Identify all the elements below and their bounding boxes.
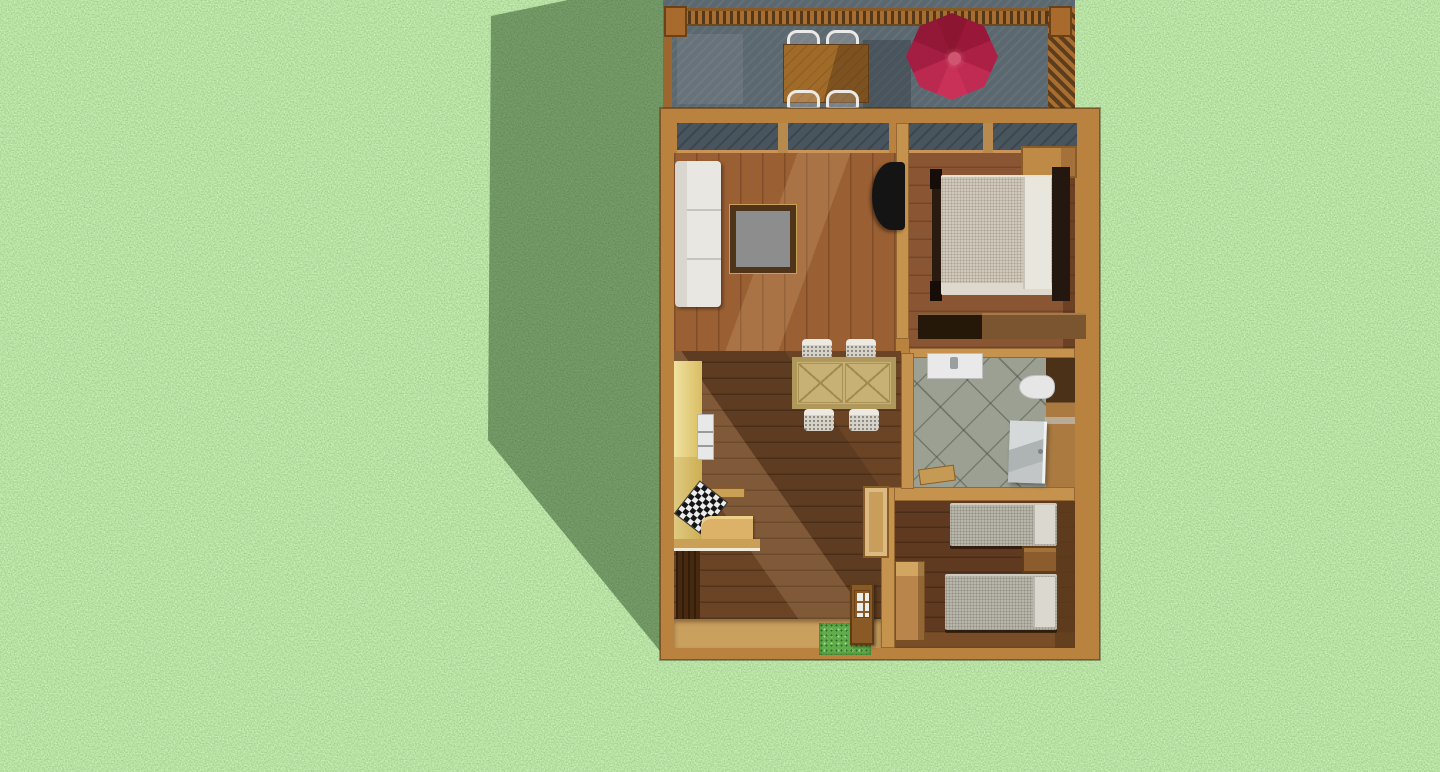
tall-dresser — [895, 561, 925, 641]
deck-post-left — [664, 6, 687, 37]
scene-3d-floor-plan — [0, 0, 1440, 772]
bathroom-door-knob — [1038, 449, 1043, 454]
bed-headboard — [1052, 167, 1070, 301]
closet-shelf — [674, 539, 760, 551]
wall-bathroom-kidsroom — [881, 487, 1075, 501]
hutch-cabinet — [863, 486, 889, 558]
bed-pillow — [1023, 177, 1051, 289]
nightstand — [1022, 546, 1058, 573]
house — [660, 108, 1100, 660]
wall-tv — [872, 162, 905, 230]
bed-pillow — [1033, 577, 1055, 627]
kitchen-appliance — [697, 414, 714, 460]
patio-chair — [826, 90, 859, 110]
dresser-bench — [918, 313, 1086, 339]
closet-cabinet — [676, 551, 700, 619]
sofa — [675, 161, 721, 307]
dining-table-panel — [798, 363, 843, 403]
dining-chair — [846, 339, 876, 359]
dining-table-panel — [845, 363, 890, 403]
sink-faucet — [950, 357, 958, 369]
deck-shadow-area — [863, 40, 911, 112]
coffee-table — [730, 205, 796, 273]
bed-pillow — [1033, 505, 1055, 544]
dining-chair — [849, 409, 879, 431]
bathroom-left-wall — [901, 353, 914, 489]
window-mullion — [983, 123, 993, 153]
deck-post-right — [1049, 6, 1072, 37]
entry-door-window — [854, 590, 870, 618]
dining-chair — [802, 339, 832, 359]
glass-shelf — [1045, 417, 1075, 424]
window-mullion — [778, 123, 788, 153]
patio-chair — [787, 90, 820, 110]
deck-railing-top — [663, 8, 1075, 26]
deck — [663, 0, 1075, 112]
dining-chair — [804, 409, 834, 431]
wall-living-bedroom — [896, 123, 909, 339]
deck-light-panel — [677, 34, 743, 104]
entry-door — [850, 583, 874, 645]
toilet — [1019, 375, 1055, 399]
dining-table — [792, 357, 896, 409]
patio-umbrella-hub — [948, 52, 961, 65]
